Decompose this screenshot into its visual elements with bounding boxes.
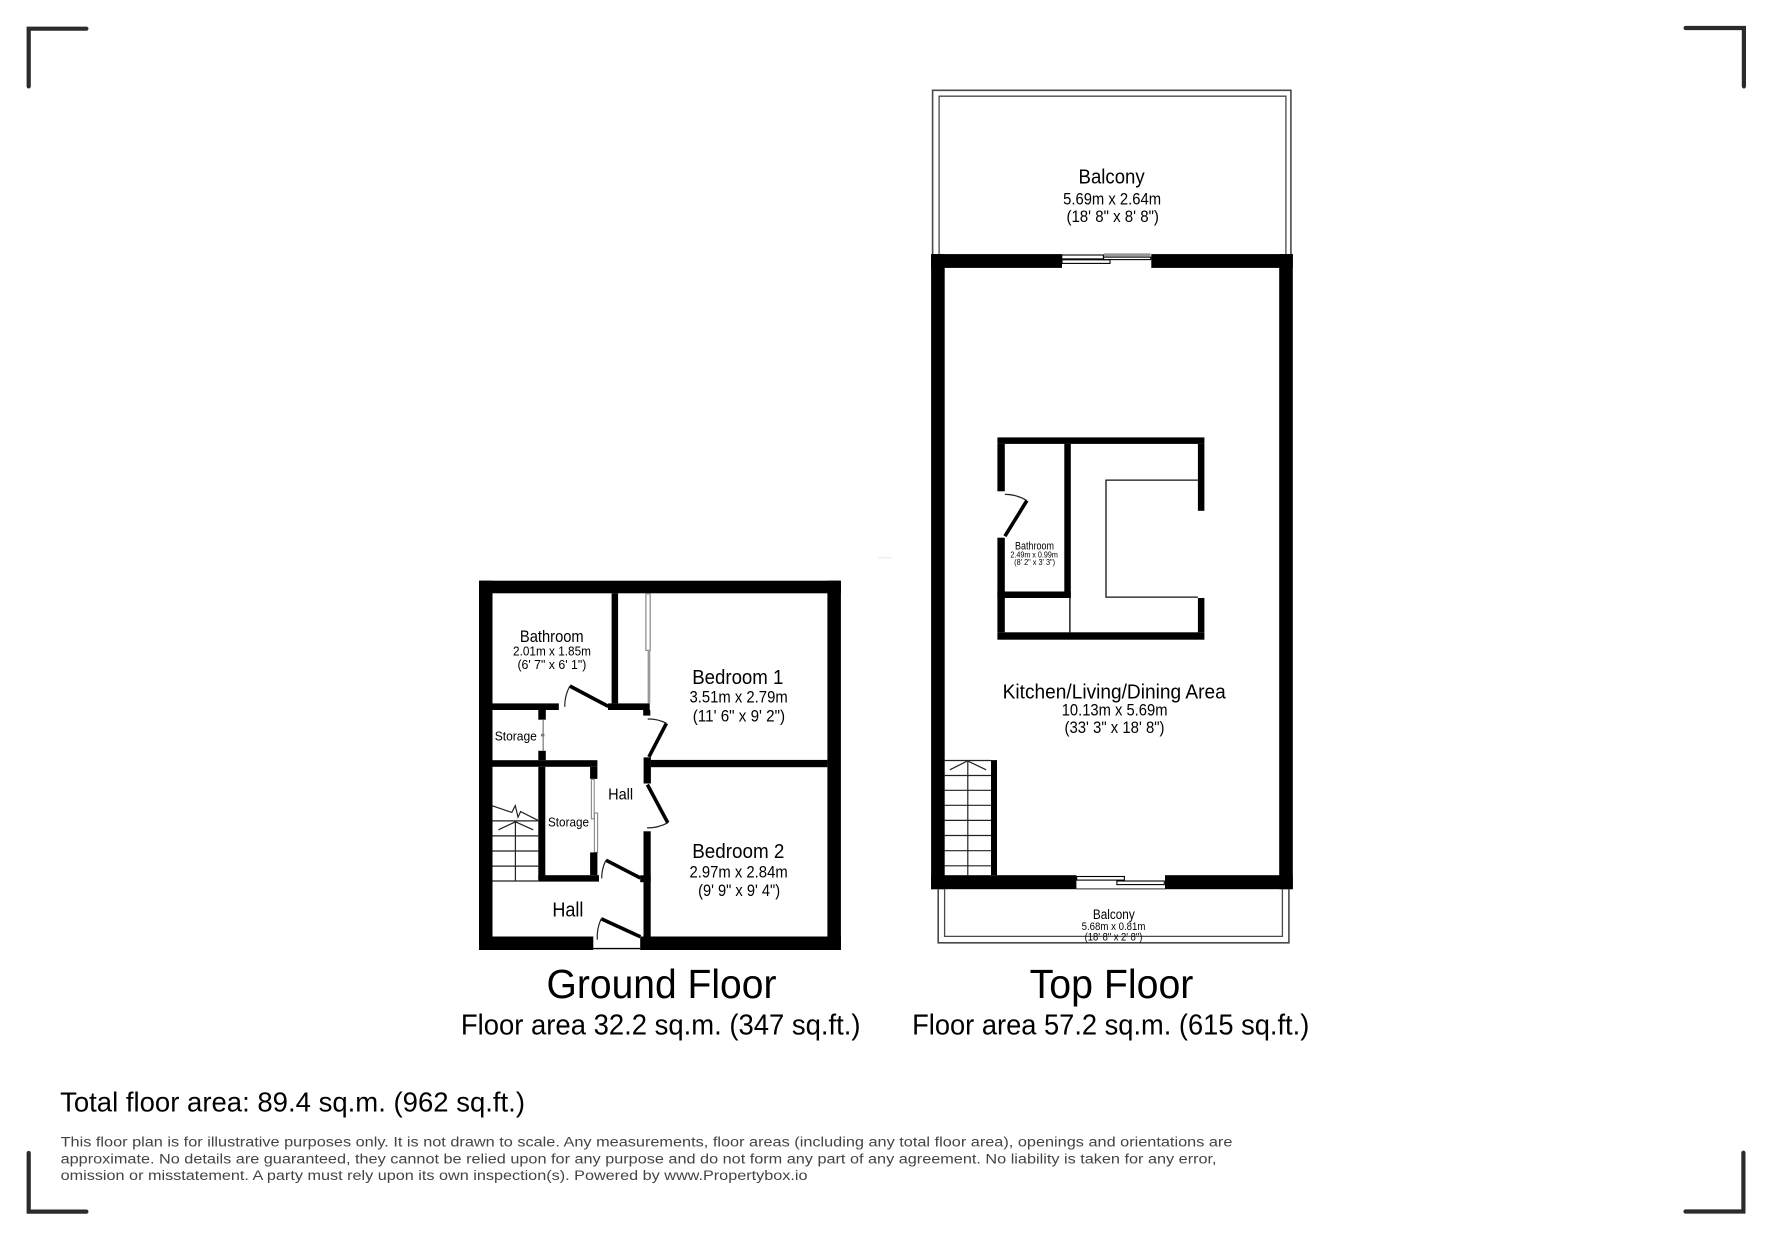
svg-text:(11' 6" x 9' 2"): (11' 6" x 9' 2") xyxy=(693,707,785,726)
svg-text:10.13m x 5.69m: 10.13m x 5.69m xyxy=(1062,702,1168,720)
svg-text:Bedroom 1: Bedroom 1 xyxy=(692,667,783,689)
svg-text:3.51m x 2.79m: 3.51m x 2.79m xyxy=(690,688,788,707)
svg-text:Storage: Storage xyxy=(548,814,589,829)
svg-text:Balcony: Balcony xyxy=(1093,907,1135,922)
svg-text:(18' 8" x 2' 8"): (18' 8" x 2' 8") xyxy=(1085,932,1143,944)
svg-text:Ground Floor: Ground Floor xyxy=(547,961,777,1007)
svg-text:Kitchen/Living/Dining Area: Kitchen/Living/Dining Area xyxy=(1003,682,1227,704)
svg-text:omission or misstatement. A pa: omission or misstatement. A party must r… xyxy=(61,1168,808,1183)
svg-text:(9' 9" x 9' 4"): (9' 9" x 9' 4") xyxy=(698,881,780,900)
svg-text:Bathroom: Bathroom xyxy=(520,627,584,646)
svg-text:(6' 7" x 6' 1"): (6' 7" x 6' 1") xyxy=(517,658,586,672)
svg-text:Top Floor: Top Floor xyxy=(1030,961,1194,1007)
svg-text:2.97m x 2.84m: 2.97m x 2.84m xyxy=(690,862,788,881)
svg-text:(33' 3" x 18' 8"): (33' 3" x 18' 8") xyxy=(1065,719,1165,737)
svg-text:Total floor area: 89.4 sq.m. (: Total floor area: 89.4 sq.m. (962 sq.ft.… xyxy=(60,1086,525,1117)
svg-text:Hall: Hall xyxy=(552,899,583,921)
svg-text:Storage: Storage xyxy=(495,729,537,744)
svg-text:Floor area 32.2 sq.m. (347 sq.: Floor area 32.2 sq.m. (347 sq.ft.) xyxy=(461,1010,861,1042)
svg-text:This floor plan is for illustr: This floor plan is for illustrative purp… xyxy=(61,1135,1233,1150)
svg-text:Balcony: Balcony xyxy=(1079,167,1145,189)
svg-text:approximate. No details are gu: approximate. No details are guaranteed, … xyxy=(61,1151,1217,1166)
svg-text:5.69m x 2.64m: 5.69m x 2.64m xyxy=(1063,189,1161,208)
svg-text:Floor area 57.2 sq.m. (615 sq.: Floor area 57.2 sq.m. (615 sq.ft.) xyxy=(912,1010,1309,1042)
svg-text:(8' 2" x 3' 3"): (8' 2" x 3' 3") xyxy=(1014,558,1055,567)
svg-text:2.01m x 1.85m: 2.01m x 1.85m xyxy=(513,644,591,658)
svg-text:Hall: Hall xyxy=(608,787,633,804)
svg-text:(18' 8" x 8' 8"): (18' 8" x 8' 8") xyxy=(1066,207,1159,226)
svg-text:Bedroom 2: Bedroom 2 xyxy=(692,841,784,863)
